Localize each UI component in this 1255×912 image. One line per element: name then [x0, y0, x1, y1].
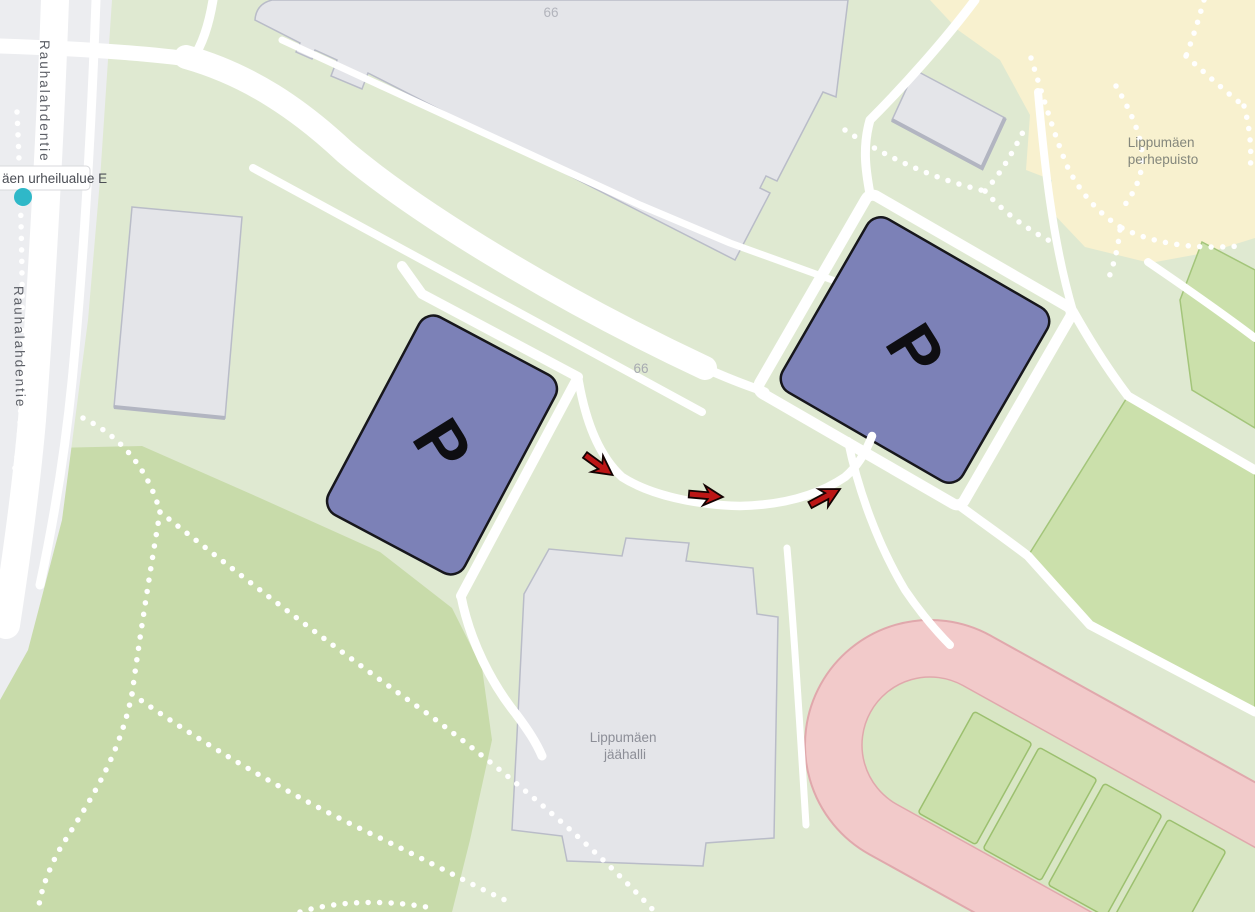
route-number-mid: 66 [633, 361, 648, 376]
street-label-repeat: Rauhalahdentie [11, 286, 28, 409]
route-number-top: 66 [543, 5, 558, 20]
poi-marker[interactable] [14, 188, 32, 206]
building-ice-hall [512, 538, 778, 866]
building-small-west [114, 207, 242, 418]
poi-tooltip-text: äen urheilualue E [2, 171, 107, 186]
street-label: Rauhalahdentie [37, 40, 52, 163]
map-canvas[interactable]: P P Rauhalahdentie Rauhalahdentie 66 66 … [0, 0, 1255, 912]
